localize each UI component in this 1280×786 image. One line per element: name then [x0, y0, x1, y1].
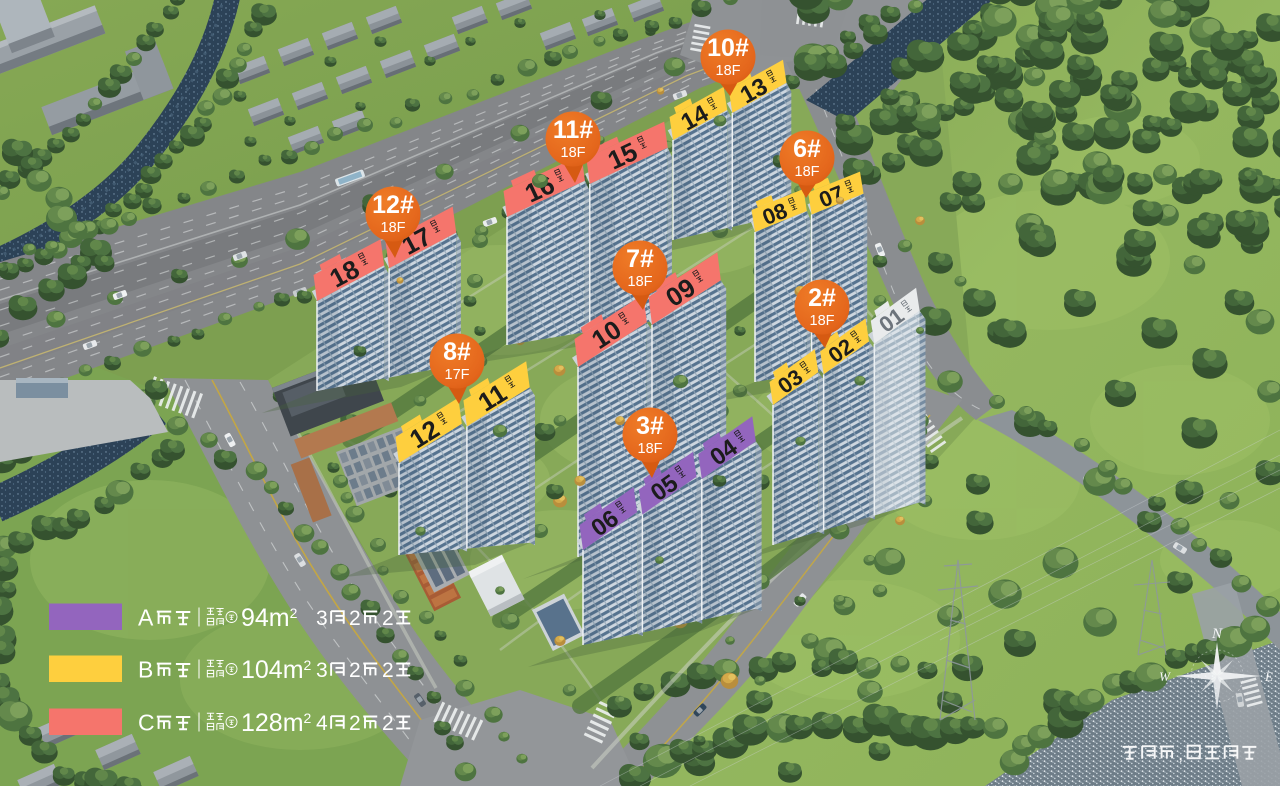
svg-text:C: C [138, 710, 155, 736]
svg-text:2: 2 [382, 659, 394, 682]
svg-text:18F: 18F [716, 63, 741, 79]
svg-text:12#: 12# [372, 191, 414, 219]
svg-text:6#: 6# [793, 135, 821, 163]
svg-text:18F: 18F [561, 145, 586, 161]
svg-text:3: 3 [316, 659, 328, 682]
svg-text:A: A [138, 605, 154, 631]
svg-text:94m2: 94m2 [241, 604, 298, 632]
svg-text:18F: 18F [381, 220, 406, 236]
svg-text:B: B [138, 657, 153, 683]
svg-text:N: N [1211, 626, 1223, 642]
svg-text:E: E [1264, 669, 1273, 684]
svg-text:2: 2 [382, 607, 394, 630]
svg-text:104m2: 104m2 [241, 656, 312, 684]
svg-text:3#: 3# [636, 412, 664, 440]
svg-text:2: 2 [349, 659, 361, 682]
svg-text:3: 3 [316, 607, 328, 630]
svg-text:10#: 10# [707, 34, 749, 62]
svg-text:2: 2 [349, 712, 361, 735]
svg-text:2#: 2# [808, 284, 836, 312]
svg-text:18F: 18F [810, 313, 835, 329]
svg-text:11#: 11# [553, 116, 593, 144]
svg-text:17F: 17F [445, 367, 470, 383]
svg-text:2: 2 [349, 607, 361, 630]
svg-text:8#: 8# [443, 338, 471, 366]
svg-text:18F: 18F [638, 441, 663, 457]
svg-text:18F: 18F [795, 164, 820, 180]
svg-text:,: , [1178, 744, 1183, 765]
svg-text:2: 2 [382, 712, 394, 735]
svg-text:4: 4 [316, 712, 328, 735]
svg-text:18F: 18F [628, 274, 653, 290]
svg-text:128m2: 128m2 [241, 709, 312, 737]
svg-text:W: W [1159, 669, 1171, 684]
svg-text:7#: 7# [626, 245, 654, 273]
